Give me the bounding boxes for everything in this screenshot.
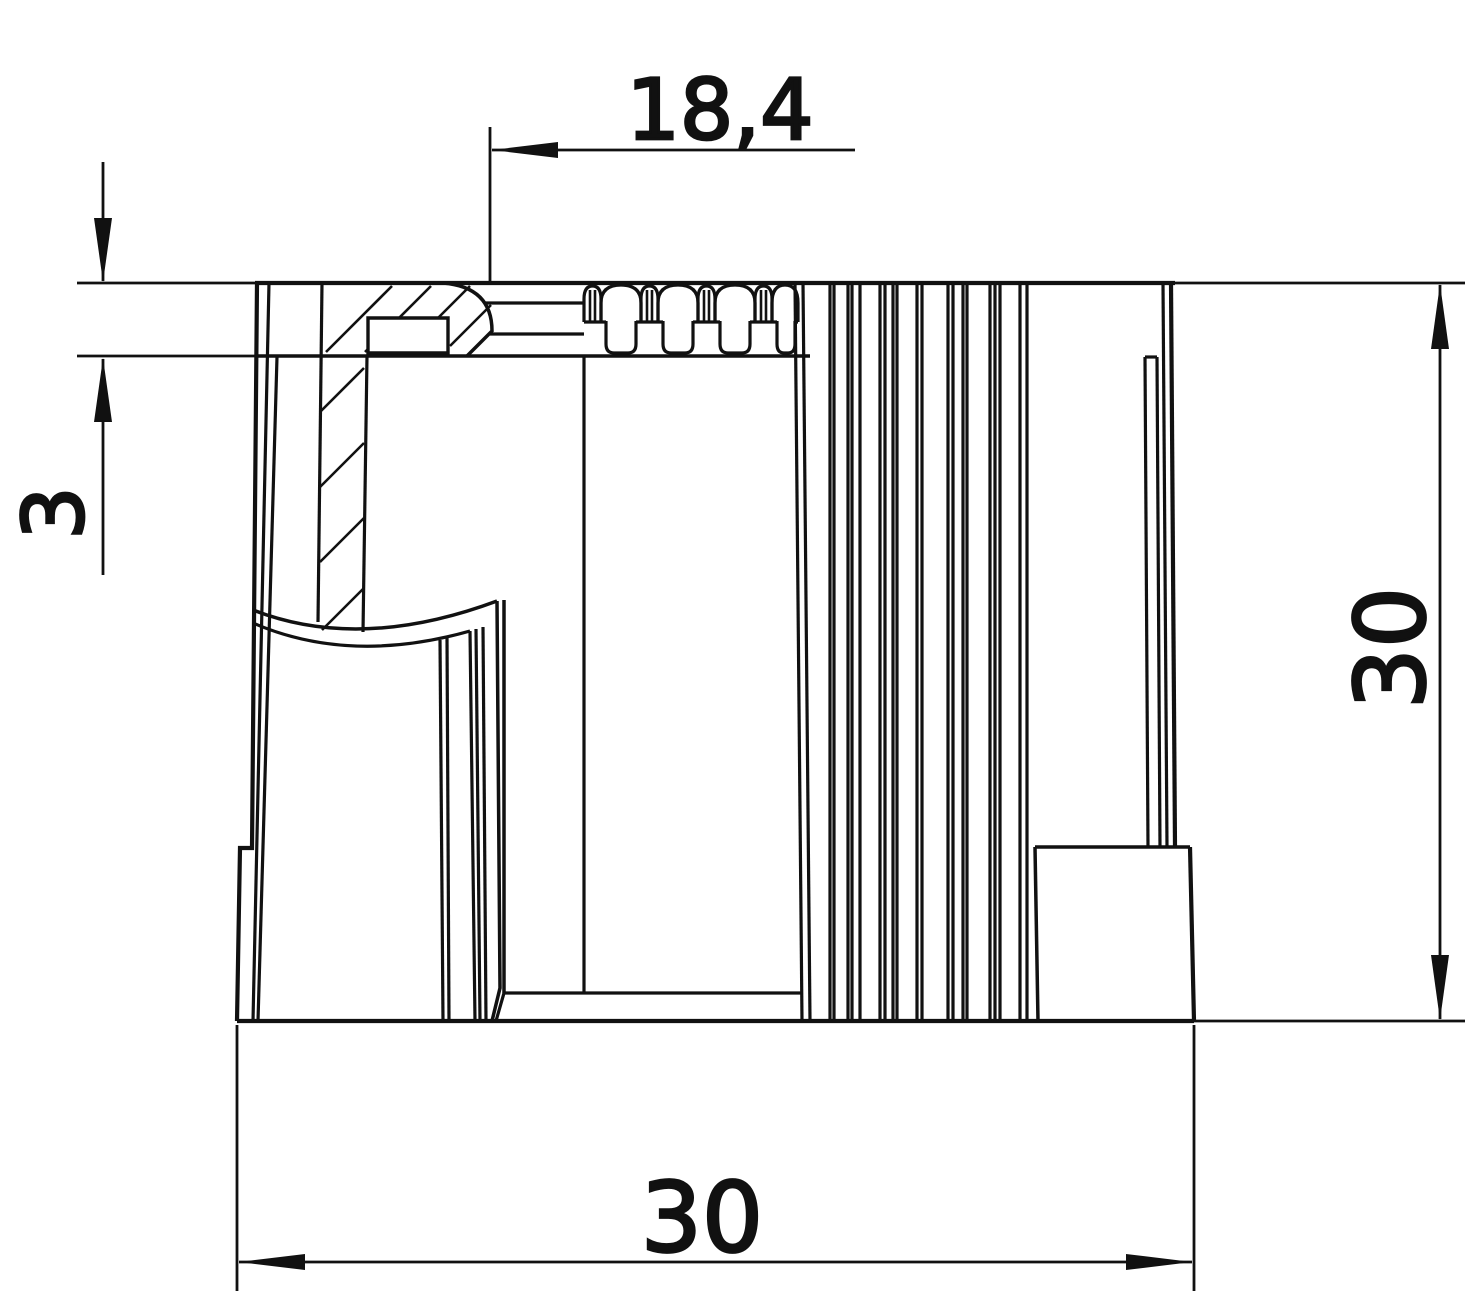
dimension-top-offset: 18,4 (490, 61, 855, 283)
wall-line (447, 637, 449, 1021)
tooth-slot-inner-lines (704, 290, 709, 322)
tooth-slot-arch (755, 286, 772, 322)
shell-bottom-arc-inner (253, 601, 497, 629)
teeth-rib-boundary-2 (803, 283, 810, 1021)
tooth-slot-inner-lines (647, 290, 652, 322)
datum-lines (77, 283, 1465, 1021)
collar-inner-boundary (318, 283, 322, 622)
arrowhead-right (1126, 1254, 1192, 1270)
tooth-groove (777, 321, 795, 353)
tooth-slot-arch (641, 286, 658, 322)
foot-right-edge (1190, 847, 1194, 1021)
tooth-slot-inner-lines (590, 290, 595, 322)
tooth-cap (601, 285, 641, 322)
dim-label-top-offset: 18,4 (626, 61, 813, 159)
collar-column-right-edge (363, 356, 367, 632)
foot-left-edge (1035, 847, 1038, 1021)
hatch-stroke (322, 588, 364, 630)
arrowhead-down (94, 218, 112, 282)
rib-lines (830, 283, 1027, 1021)
tooth-groove (606, 321, 636, 353)
sleeve-wall-lines (440, 283, 810, 1021)
groove-left-wall (1145, 357, 1148, 847)
grip-teeth (584, 285, 798, 353)
technical-drawing-canvas: 18,4 3 30 30 (0, 0, 1465, 1293)
tooth-groove (663, 321, 693, 353)
wall-line (440, 640, 443, 1021)
tooth-slot-inner-lines (761, 290, 766, 322)
dim-label-overall-width: 30 (641, 1162, 763, 1274)
tooth-slot-arch (698, 286, 715, 322)
tooth-slot-arch (584, 286, 601, 322)
right-edge-inner (1163, 283, 1167, 847)
arrowhead-down (1431, 955, 1449, 1020)
tooth-cap (715, 285, 755, 322)
hatch-stroke (320, 368, 364, 412)
wall-line (476, 629, 480, 1021)
right-edge-outer (1171, 283, 1175, 847)
groove-right-wall (1157, 357, 1160, 847)
collar-notch (368, 318, 448, 353)
tooth-groove (720, 321, 750, 353)
hatch-stroke (320, 518, 364, 562)
wall-line (483, 627, 486, 1021)
arrowhead-up (1431, 284, 1449, 349)
dimension-collar-thickness: 3 (5, 162, 112, 575)
technical-drawing-page: 18,4 3 30 30 (0, 0, 1465, 1293)
wall-line (470, 631, 475, 1021)
right-groove (1145, 357, 1160, 847)
left-section-outline (237, 283, 584, 1021)
dim-label-overall-height: 30 (1335, 587, 1447, 709)
arrowhead-up (94, 358, 112, 422)
right-foot (1035, 847, 1194, 1021)
right-silhouette (1163, 283, 1175, 847)
dimension-overall-width: 30 (237, 1025, 1194, 1291)
teeth-rib-boundary-1 (795, 283, 802, 1021)
dim-label-collar-thickness: 3 (5, 486, 103, 539)
hatch-stroke (320, 443, 364, 487)
arrowhead-left (239, 1254, 305, 1270)
tooth-cap (658, 285, 698, 322)
front-edge-left (492, 601, 500, 1021)
arrowhead-left (492, 142, 558, 158)
dimension-overall-height: 30 (1335, 284, 1449, 1020)
